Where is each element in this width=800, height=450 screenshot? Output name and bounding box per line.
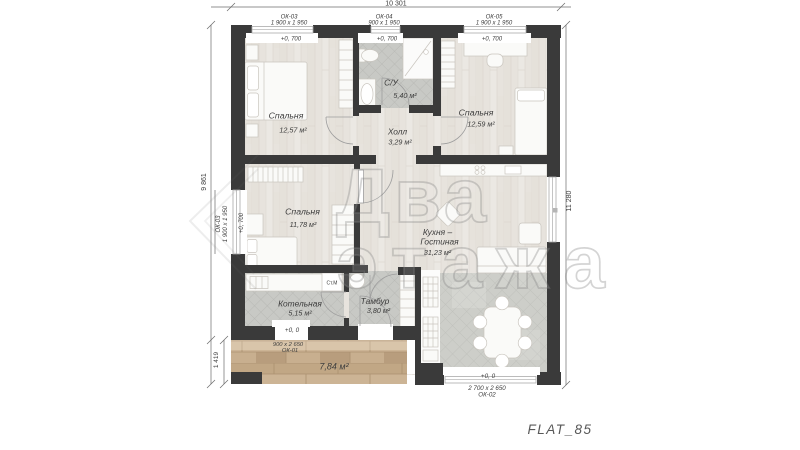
svg-text:Спальня: Спальня xyxy=(285,207,320,217)
svg-text:Спальня: Спальня xyxy=(269,111,304,121)
svg-text:+0, 700: +0, 700 xyxy=(377,37,398,43)
svg-text:ОК-02: ОК-02 xyxy=(478,392,496,399)
svg-text:Гостиная: Гостиная xyxy=(420,237,459,247)
svg-text:11,78 м²: 11,78 м² xyxy=(290,220,317,229)
svg-text:11 280: 11 280 xyxy=(566,190,573,211)
svg-text:+0, 700: +0, 700 xyxy=(482,37,503,43)
svg-text:Котельная: Котельная xyxy=(278,299,322,309)
svg-text:3,29 м²: 3,29 м² xyxy=(388,138,412,147)
svg-text:Спальня: Спальня xyxy=(459,108,494,118)
svg-text:10 301: 10 301 xyxy=(385,1,407,8)
svg-text:1 900 х 1 950: 1 900 х 1 950 xyxy=(223,205,229,242)
svg-text:12,57 м²: 12,57 м² xyxy=(279,126,307,135)
svg-text:12,59 м²: 12,59 м² xyxy=(467,120,495,129)
svg-text:+0, 700: +0, 700 xyxy=(239,212,245,233)
svg-text:Кухня –: Кухня – xyxy=(423,227,453,237)
svg-text:1 900 х 1 950: 1 900 х 1 950 xyxy=(271,21,308,27)
svg-text:Холл: Холл xyxy=(387,127,408,137)
svg-text:900 х 1 950: 900 х 1 950 xyxy=(368,21,400,27)
svg-text:FLAT_85: FLAT_85 xyxy=(527,422,592,437)
svg-text:Тамбур: Тамбур xyxy=(361,296,390,306)
svg-text:+0, 700: +0, 700 xyxy=(281,37,302,43)
svg-text:5,15 м²: 5,15 м² xyxy=(288,309,312,318)
svg-text:Ст.М: Ст.М xyxy=(327,281,338,287)
svg-text:1 900 х 1 950: 1 900 х 1 950 xyxy=(476,21,513,27)
svg-text:7,84 м²: 7,84 м² xyxy=(319,362,349,372)
svg-text:этажа: этажа xyxy=(337,221,619,304)
svg-text:31,23 м²: 31,23 м² xyxy=(424,248,452,257)
svg-text:С/У: С/У xyxy=(384,78,399,88)
svg-text:5,40 м²: 5,40 м² xyxy=(393,91,417,100)
svg-text:3,80 м²: 3,80 м² xyxy=(367,306,391,315)
svg-text:9 861: 9 861 xyxy=(201,173,208,191)
svg-text:+0, 0: +0, 0 xyxy=(481,373,496,380)
svg-text:ОК-01: ОК-01 xyxy=(282,348,298,354)
svg-text:+0, 0: +0, 0 xyxy=(285,327,300,334)
svg-text:1 419: 1 419 xyxy=(213,351,220,368)
svg-text:ОК-03: ОК-03 xyxy=(216,215,222,233)
